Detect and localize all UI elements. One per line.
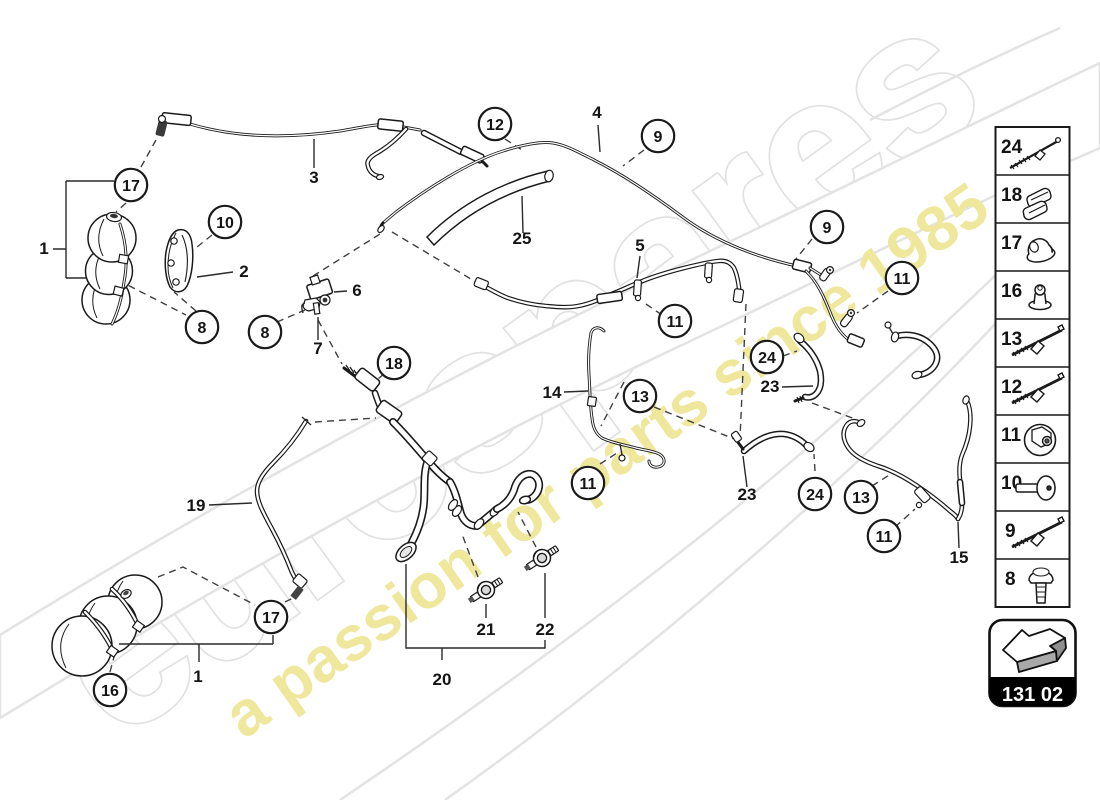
svg-text:12: 12	[1001, 377, 1022, 398]
svg-text:4: 4	[592, 103, 602, 122]
svg-text:19: 19	[187, 496, 206, 515]
svg-text:11: 11	[667, 314, 684, 331]
svg-text:3: 3	[309, 168, 318, 187]
svg-text:1: 1	[193, 667, 202, 686]
svg-text:9: 9	[1005, 521, 1016, 542]
svg-text:24: 24	[1001, 137, 1023, 158]
svg-text:13: 13	[631, 389, 649, 406]
svg-text:8: 8	[1005, 569, 1016, 590]
svg-text:17: 17	[122, 178, 140, 195]
svg-text:11: 11	[876, 529, 893, 546]
svg-text:10: 10	[216, 215, 234, 232]
svg-text:13: 13	[852, 490, 870, 507]
svg-text:1: 1	[39, 239, 48, 258]
svg-text:9: 9	[823, 220, 832, 237]
svg-text:23: 23	[761, 377, 780, 396]
svg-text:16: 16	[1001, 281, 1022, 302]
svg-text:8: 8	[261, 325, 270, 342]
svg-text:8: 8	[198, 320, 207, 337]
svg-text:13: 13	[1001, 329, 1022, 350]
svg-text:5: 5	[635, 236, 644, 255]
svg-text:17: 17	[1001, 233, 1022, 254]
svg-text:6: 6	[352, 281, 361, 300]
svg-text:14: 14	[543, 383, 562, 402]
svg-text:22: 22	[536, 620, 555, 639]
svg-text:24: 24	[806, 487, 824, 504]
svg-text:18: 18	[385, 356, 403, 373]
svg-text:131 02: 131 02	[1002, 684, 1063, 706]
svg-text:24: 24	[758, 350, 776, 367]
svg-text:11: 11	[1001, 425, 1022, 446]
svg-text:11: 11	[894, 271, 911, 288]
svg-text:7: 7	[313, 339, 322, 358]
svg-text:23: 23	[738, 485, 757, 504]
svg-text:12: 12	[486, 117, 504, 134]
svg-text:25: 25	[513, 229, 532, 248]
svg-text:16: 16	[101, 683, 119, 700]
svg-text:9: 9	[654, 129, 663, 146]
svg-text:20: 20	[433, 670, 452, 689]
svg-text:2: 2	[239, 262, 248, 281]
svg-text:11: 11	[580, 476, 597, 493]
svg-text:21: 21	[477, 620, 496, 639]
svg-text:17: 17	[262, 610, 280, 627]
svg-text:15: 15	[950, 548, 969, 567]
svg-text:18: 18	[1001, 185, 1022, 206]
